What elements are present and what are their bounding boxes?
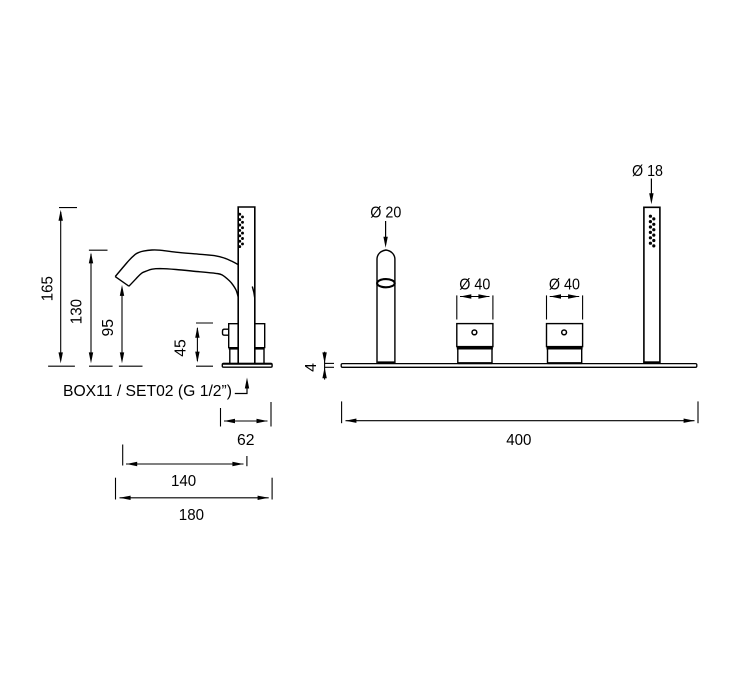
- svg-text:Ø 20: Ø 20: [370, 204, 401, 221]
- svg-text:4: 4: [303, 363, 320, 372]
- svg-text:165: 165: [39, 276, 56, 301]
- svg-text:BOX11 / SET02 (G 1/2”): BOX11 / SET02 (G 1/2”): [63, 383, 232, 400]
- svg-text:95: 95: [100, 319, 117, 337]
- svg-text:400: 400: [506, 432, 531, 449]
- svg-text:Ø 18: Ø 18: [632, 163, 663, 180]
- svg-text:Ø 40: Ø 40: [459, 277, 490, 294]
- svg-text:180: 180: [179, 507, 204, 524]
- svg-text:45: 45: [172, 339, 189, 357]
- svg-text:Ø 40: Ø 40: [549, 277, 580, 294]
- svg-text:140: 140: [171, 473, 196, 490]
- svg-text:62: 62: [237, 432, 255, 449]
- svg-text:130: 130: [68, 299, 85, 324]
